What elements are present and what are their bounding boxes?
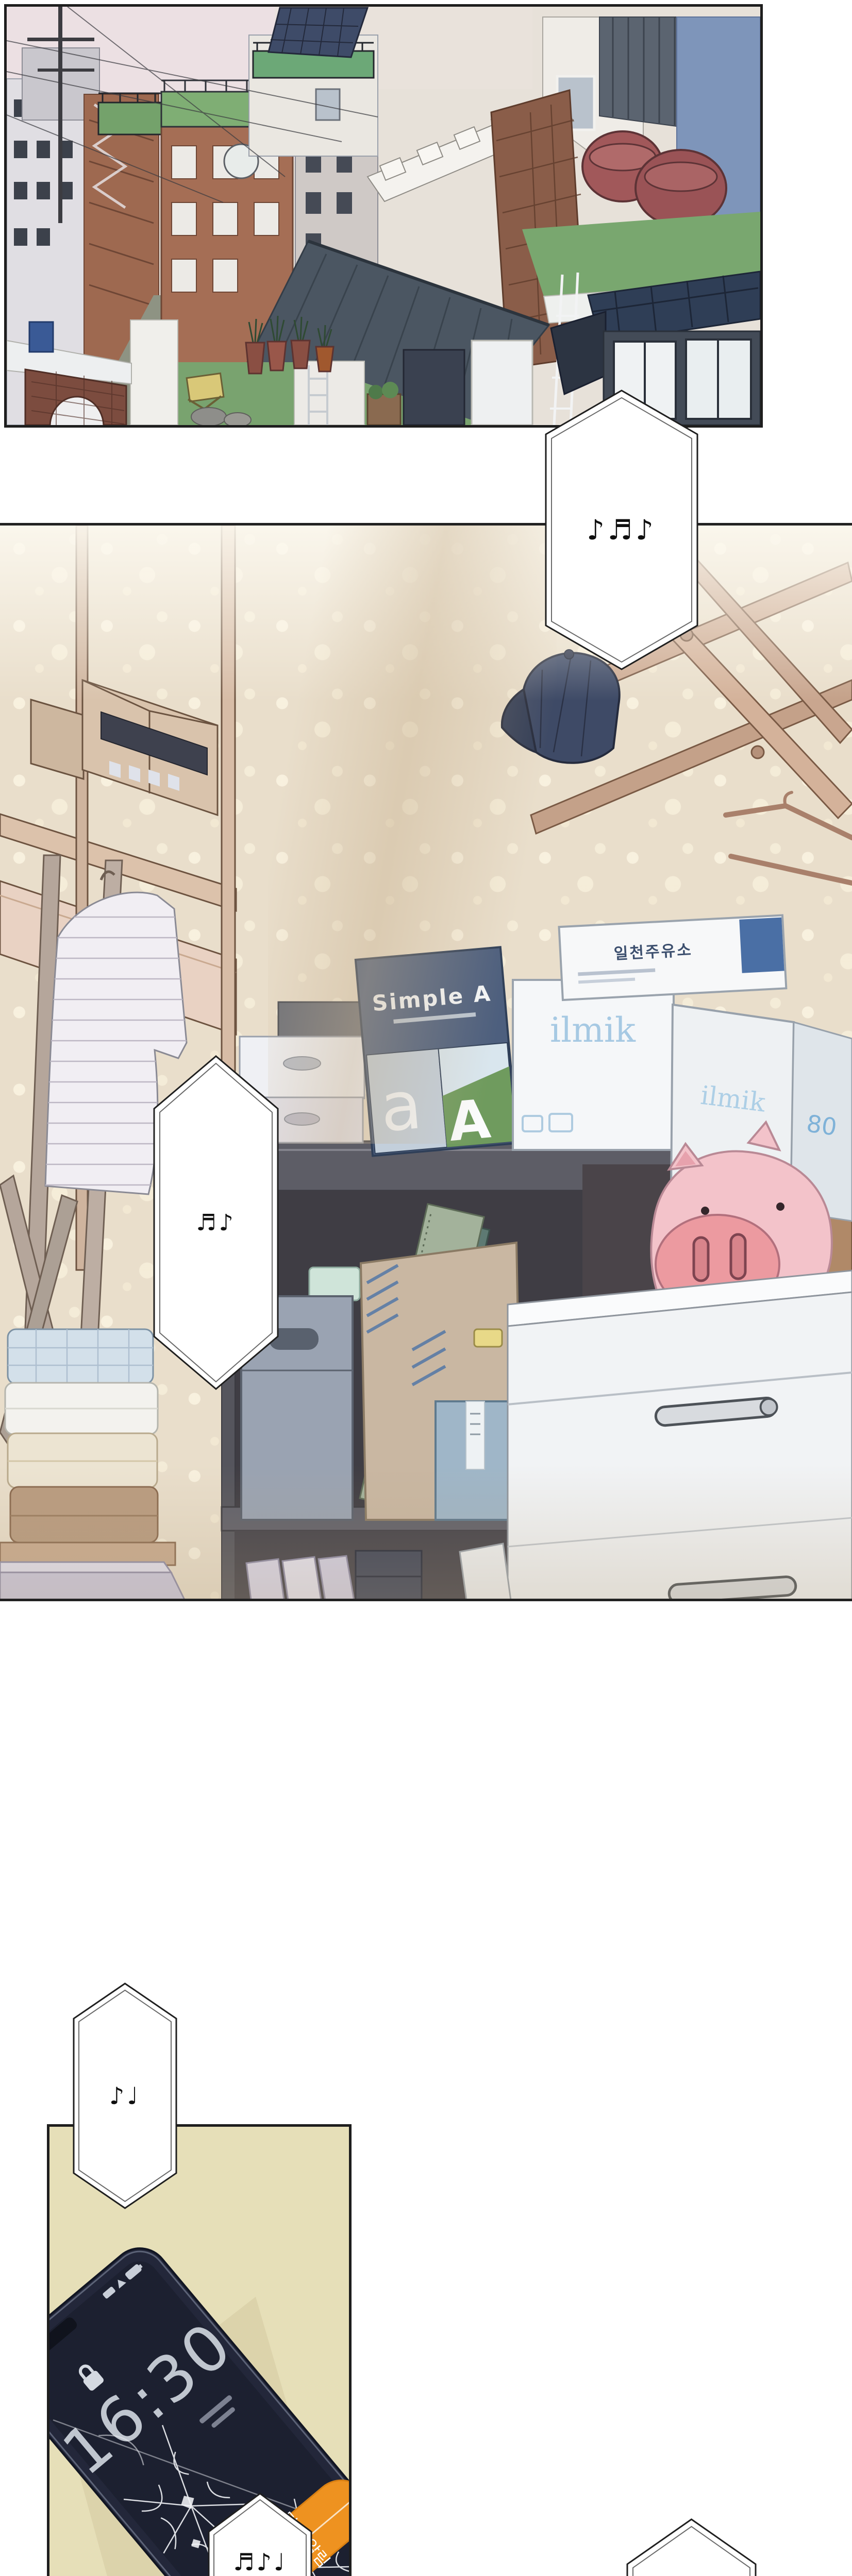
music-bubble-4: ♬♪♩	[207, 2493, 313, 2576]
music-bubble-1: ♪♬♪	[544, 389, 699, 670]
music-notes: ♬♪	[153, 1055, 279, 1390]
towel	[8, 1329, 153, 1384]
plant-shelf	[367, 382, 400, 425]
pig-eye	[776, 1202, 784, 1211]
storage-cabinet	[404, 350, 464, 425]
lavender-desk	[0, 1572, 187, 1601]
towel	[10, 1487, 158, 1543]
solar-panel	[269, 8, 367, 57]
tape-label	[466, 1401, 485, 1469]
music-notes: ♪♩	[72, 1982, 178, 2209]
city-illustration	[7, 7, 760, 425]
music-notes: ♬♪♩	[207, 2493, 313, 2576]
box-handle-slot	[285, 1113, 320, 1125]
white-door	[472, 341, 532, 425]
ilmik-box-front: ilmik	[513, 980, 674, 1150]
drawer-unit	[508, 1270, 852, 1601]
towel-stack	[0, 1329, 175, 1565]
ilmik-label: ilmik	[550, 1010, 636, 1050]
room-illustration: Simple A a A ilmik ilmik 80	[0, 526, 852, 1601]
simple-a-box: Simple A a A	[356, 947, 518, 1160]
music-notes: ♪♬♪♩	[626, 2518, 757, 2576]
music-bubble-3: ♪♩	[72, 1982, 178, 2209]
korean-label-box: 일천주유소	[559, 915, 787, 1000]
letter-a-small: a	[377, 1065, 425, 1147]
music-notes: ♪♬♪	[544, 389, 699, 670]
panel-city	[4, 4, 763, 428]
yellow-clip	[474, 1329, 502, 1347]
webtoon-page: Simple A a A ilmik ilmik 80	[0, 0, 852, 2576]
file-holders	[246, 1556, 355, 1601]
ilmik-side-number: 80	[805, 1109, 838, 1141]
pig-eye	[701, 1207, 709, 1215]
music-bubble-2: ♬♪	[153, 1055, 279, 1390]
box-handle-slot	[283, 1057, 321, 1070]
leaning-board	[460, 1544, 511, 1601]
letter-a-large: A	[446, 1088, 493, 1154]
panel-room: Simple A a A ilmik ilmik 80	[0, 523, 852, 1601]
cardboard-boxes	[31, 680, 218, 815]
music-bubble-5: ♪♬♪♩	[626, 2518, 757, 2576]
